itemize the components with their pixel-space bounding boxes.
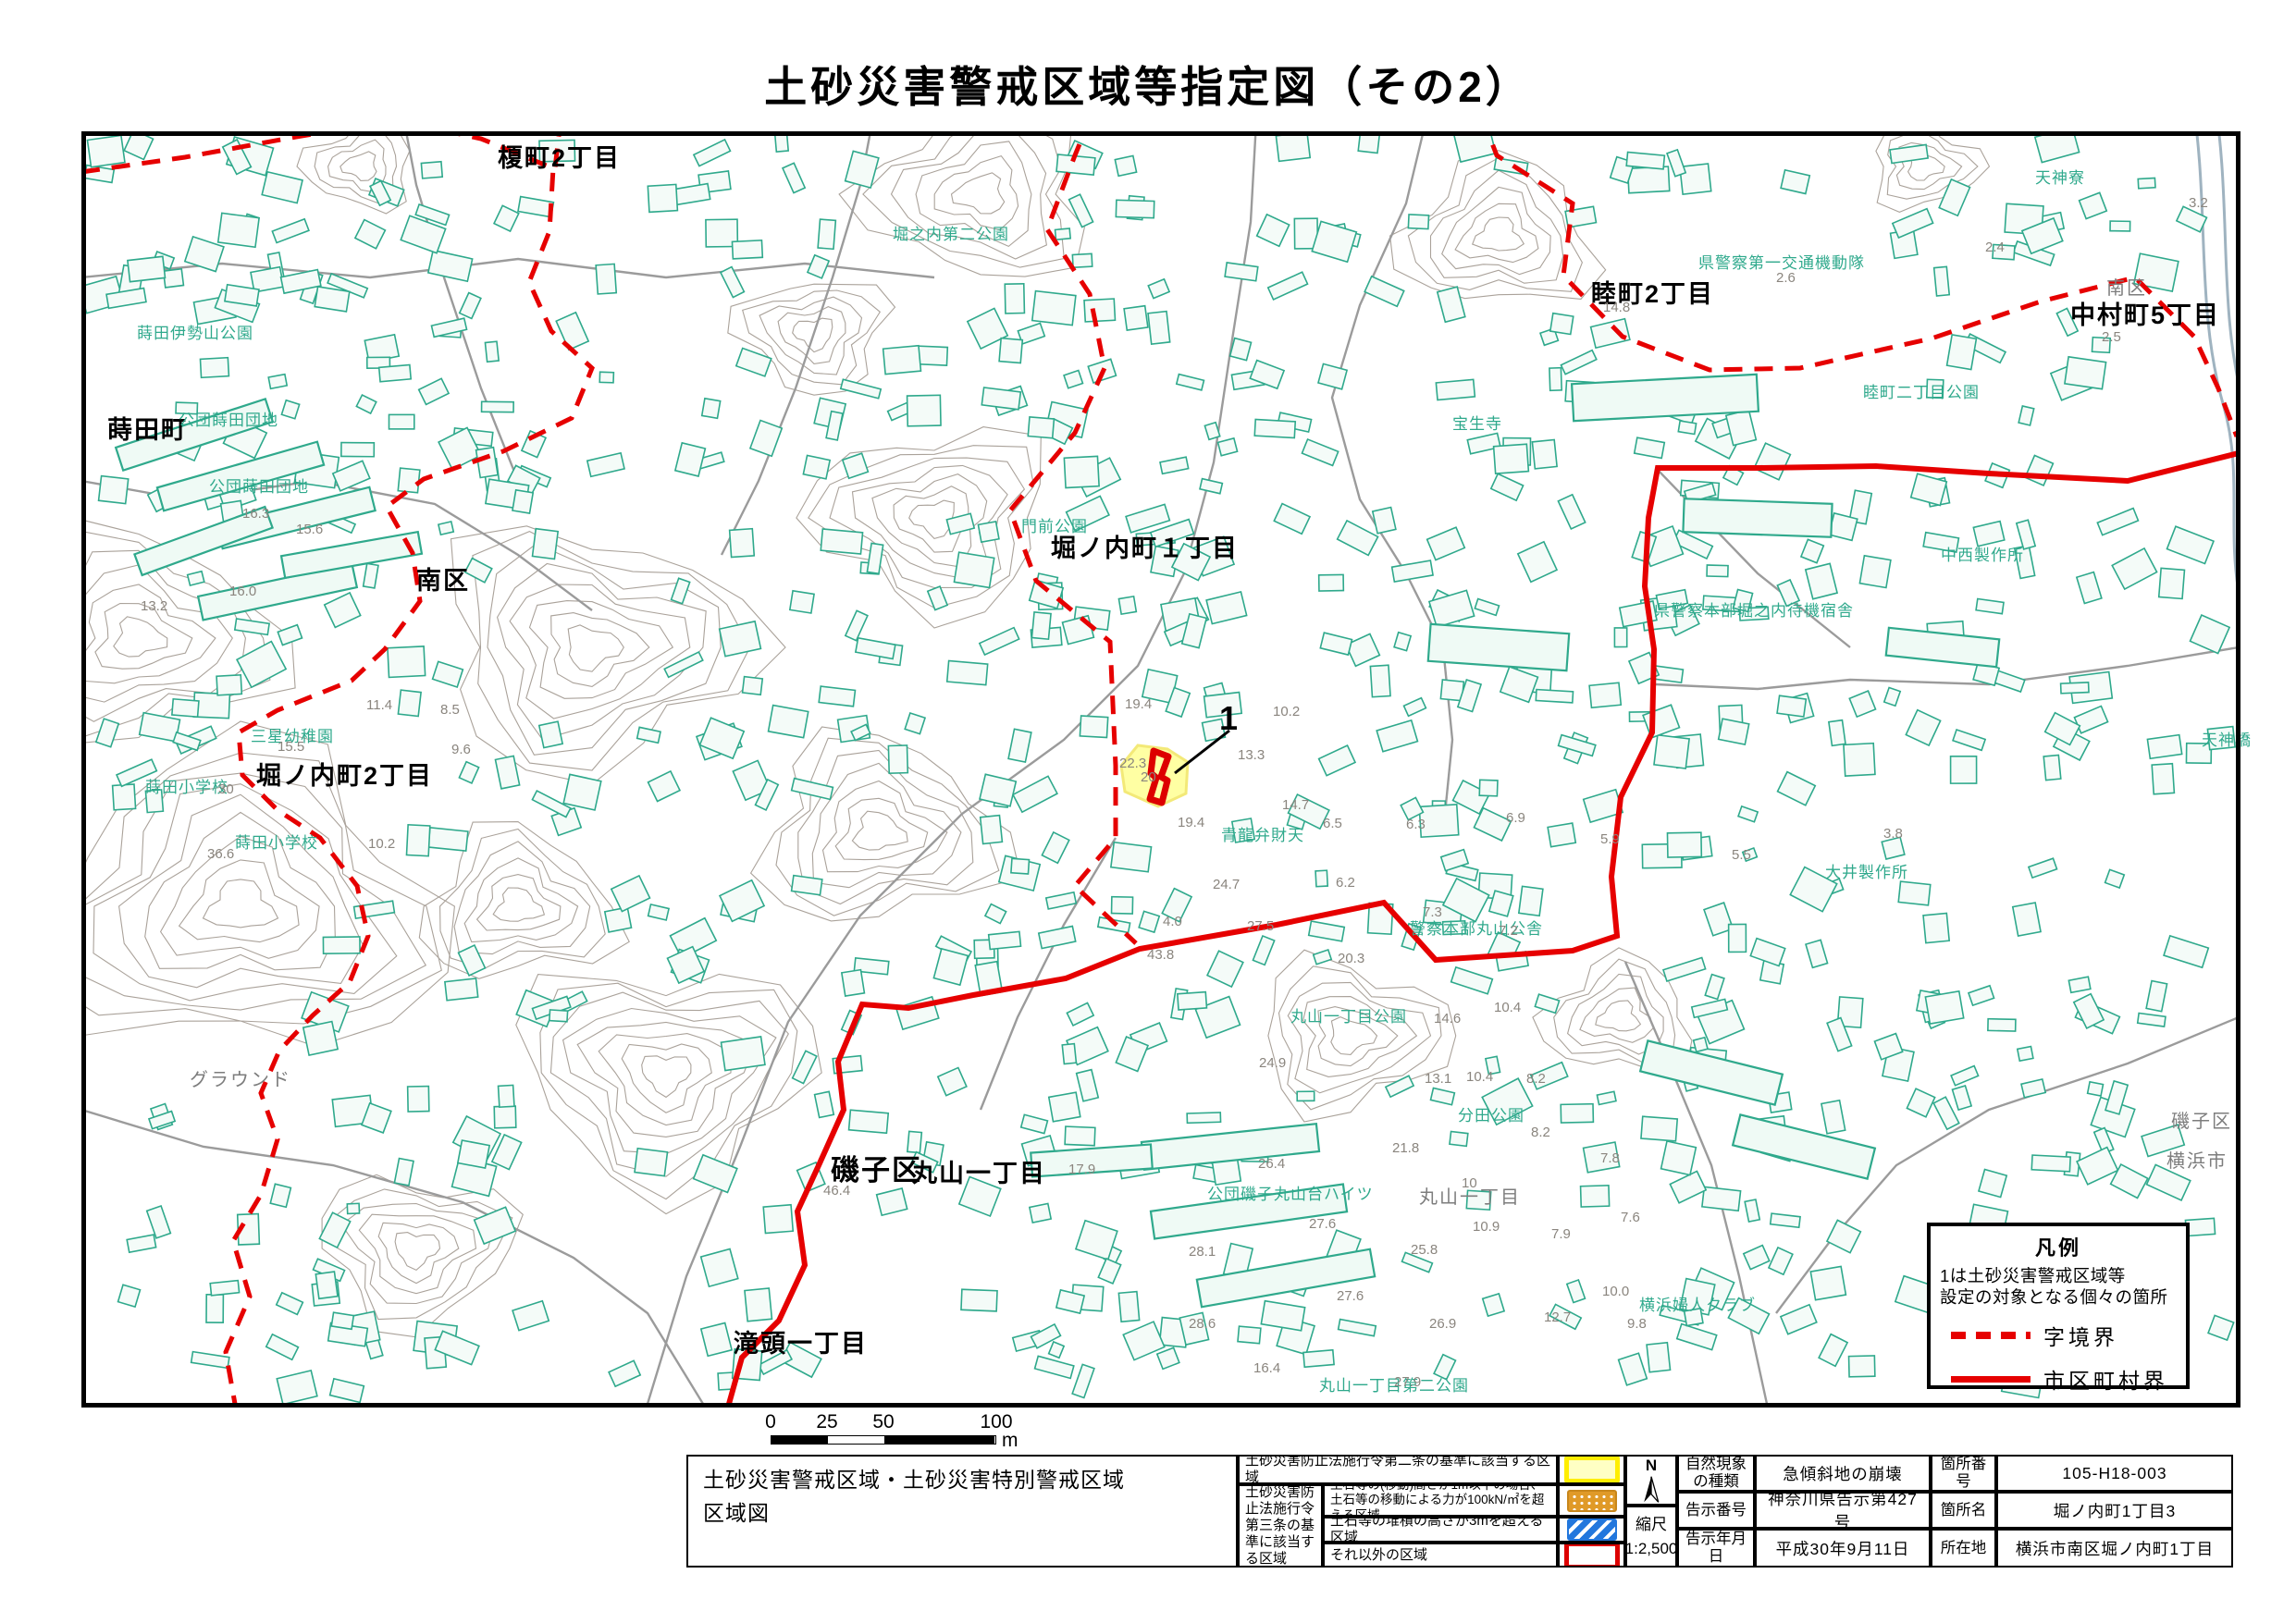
swatch-yellow-cell bbox=[1558, 1455, 1625, 1484]
criteria-article3-group-cell: 土砂災害防止法施行令第三条の基準に該当する区域 bbox=[1238, 1484, 1323, 1568]
site-location-label-cell: 所在地 bbox=[1931, 1529, 1996, 1568]
notice-number-label-cell: 告示番号 bbox=[1677, 1492, 1755, 1529]
north-label: N bbox=[1646, 1457, 1657, 1475]
site-number-label-cell: 箇所番号 bbox=[1931, 1455, 1996, 1492]
phenomenon-value-cell: 急傾斜地の崩壊 bbox=[1755, 1455, 1931, 1492]
river-lines bbox=[2191, 88, 2259, 758]
scale-tick: 25 bbox=[816, 1411, 837, 1433]
scale-bar: 0 25 50 100 m bbox=[771, 1411, 1048, 1454]
site-name-value-cell: 堀ノ内町1丁目3 bbox=[1996, 1492, 2233, 1529]
site-location-value-cell: 横浜市南区堀ノ内町1丁目 bbox=[1996, 1529, 2233, 1568]
north-arrow-cell: N bbox=[1625, 1455, 1677, 1506]
dashed-red-line-sample bbox=[1951, 1332, 2031, 1339]
scale-bar-strip bbox=[771, 1435, 996, 1445]
document-title-cell: 土砂災害警戒区域・土砂災害特別警戒区域 区域図 bbox=[686, 1455, 1238, 1568]
designated-site-marker bbox=[1121, 731, 1229, 806]
site-name-label-cell: 箇所名 bbox=[1931, 1492, 1996, 1529]
phenomenon-label-cell: 自然現象の種類 bbox=[1677, 1455, 1755, 1492]
swatch-red-cell bbox=[1558, 1543, 1625, 1568]
site-number-label: 1 bbox=[1219, 699, 1238, 738]
legend-title: 凡例 bbox=[1940, 1232, 2177, 1261]
criteria-article2-cell: 土砂災害防止法施行令第二条の基準に該当する区域 bbox=[1238, 1455, 1558, 1484]
yellow-zone-swatch bbox=[1564, 1456, 1620, 1483]
info-table: 土砂災害警戒区域・土砂災害特別警戒区域 区域図 土砂災害防止法施行令第二条の基準… bbox=[686, 1455, 2233, 1568]
criteria-row3-cell: 土石等の堆積の高さが3mを超える区域 bbox=[1323, 1517, 1558, 1543]
notice-number-value-cell: 神奈川県告示第427号 bbox=[1755, 1492, 1931, 1529]
legend-note: 1は土砂災害警戒区域等 設定の対象となる個々の箇所 bbox=[1940, 1265, 2177, 1308]
north-arrow-icon bbox=[1639, 1475, 1663, 1504]
scale-tick: 50 bbox=[872, 1411, 894, 1433]
criteria-row2-cell: 土石等の(移動)高さが1m以下の場合、土石等の移動による力が100kN/㎡を超え… bbox=[1323, 1484, 1558, 1517]
orange-dotted-zone-swatch bbox=[1567, 1490, 1617, 1512]
swatch-orange-cell bbox=[1558, 1484, 1625, 1517]
legend-item-aza-boundary: 字境界 bbox=[1940, 1320, 2177, 1351]
legend-box: 凡例 1は土砂災害警戒区域等 設定の対象となる個々の箇所 字境界 市区町村界 bbox=[1927, 1223, 2190, 1389]
scale-unit: m bbox=[1002, 1430, 1018, 1452]
criteria-row4-cell: それ以外の区域 bbox=[1323, 1543, 1558, 1568]
swatch-blue-cell bbox=[1558, 1517, 1625, 1543]
scale-cell: 縮尺 1:2,500 bbox=[1625, 1506, 1677, 1568]
legend-item-municipal-boundary: 市区町村界 bbox=[1940, 1363, 2177, 1395]
notice-date-value-cell: 平成30年9月11日 bbox=[1755, 1529, 1931, 1568]
scale-tick: 0 bbox=[765, 1411, 776, 1433]
red-outline-zone-swatch bbox=[1564, 1543, 1620, 1568]
blue-hatched-zone-swatch bbox=[1567, 1518, 1617, 1541]
notice-date-label-cell: 告示年月日 bbox=[1677, 1529, 1755, 1568]
solid-red-line-sample bbox=[1951, 1376, 2031, 1383]
site-number-value-cell: 105-H18-003 bbox=[1996, 1455, 2233, 1492]
